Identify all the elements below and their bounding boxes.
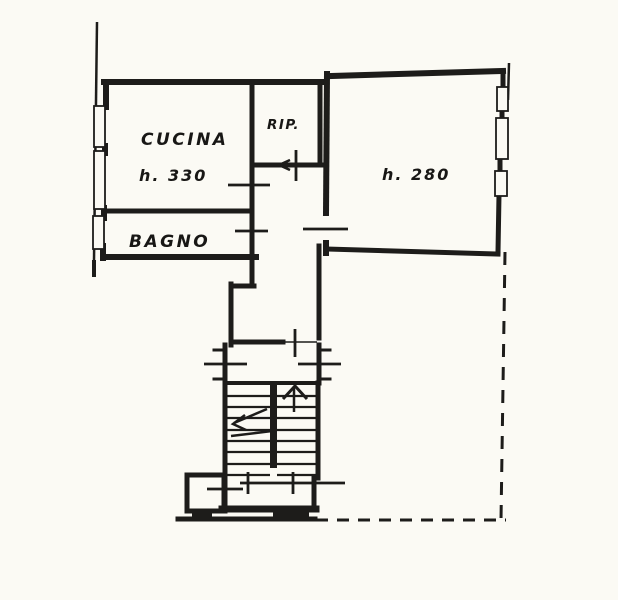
main-room-walls [326,63,509,254]
stairs-down-arrow-icon [231,409,272,436]
elevator-shaft [187,475,224,511]
room-height-main: h. 280 [382,165,450,184]
stair-steps-right [277,396,317,475]
room-label-bagno: BAGNO [129,232,210,252]
room-height-cucina: h. 330 [139,166,207,185]
window-icon [93,106,105,249]
corridor-walls [231,246,319,342]
room-label-cucina: CUCINA [141,130,228,150]
floor-plan-svg: CUCINA h. 330 BAGNO RIP. h. 280 [0,0,618,600]
staircase [222,383,318,511]
boundary-dashed-line [316,252,506,520]
window-icon [495,87,508,196]
room-label-rip: RIP. [267,117,300,133]
floor-plan-scan: CUCINA h. 330 BAGNO RIP. h. 280 [0,0,618,600]
